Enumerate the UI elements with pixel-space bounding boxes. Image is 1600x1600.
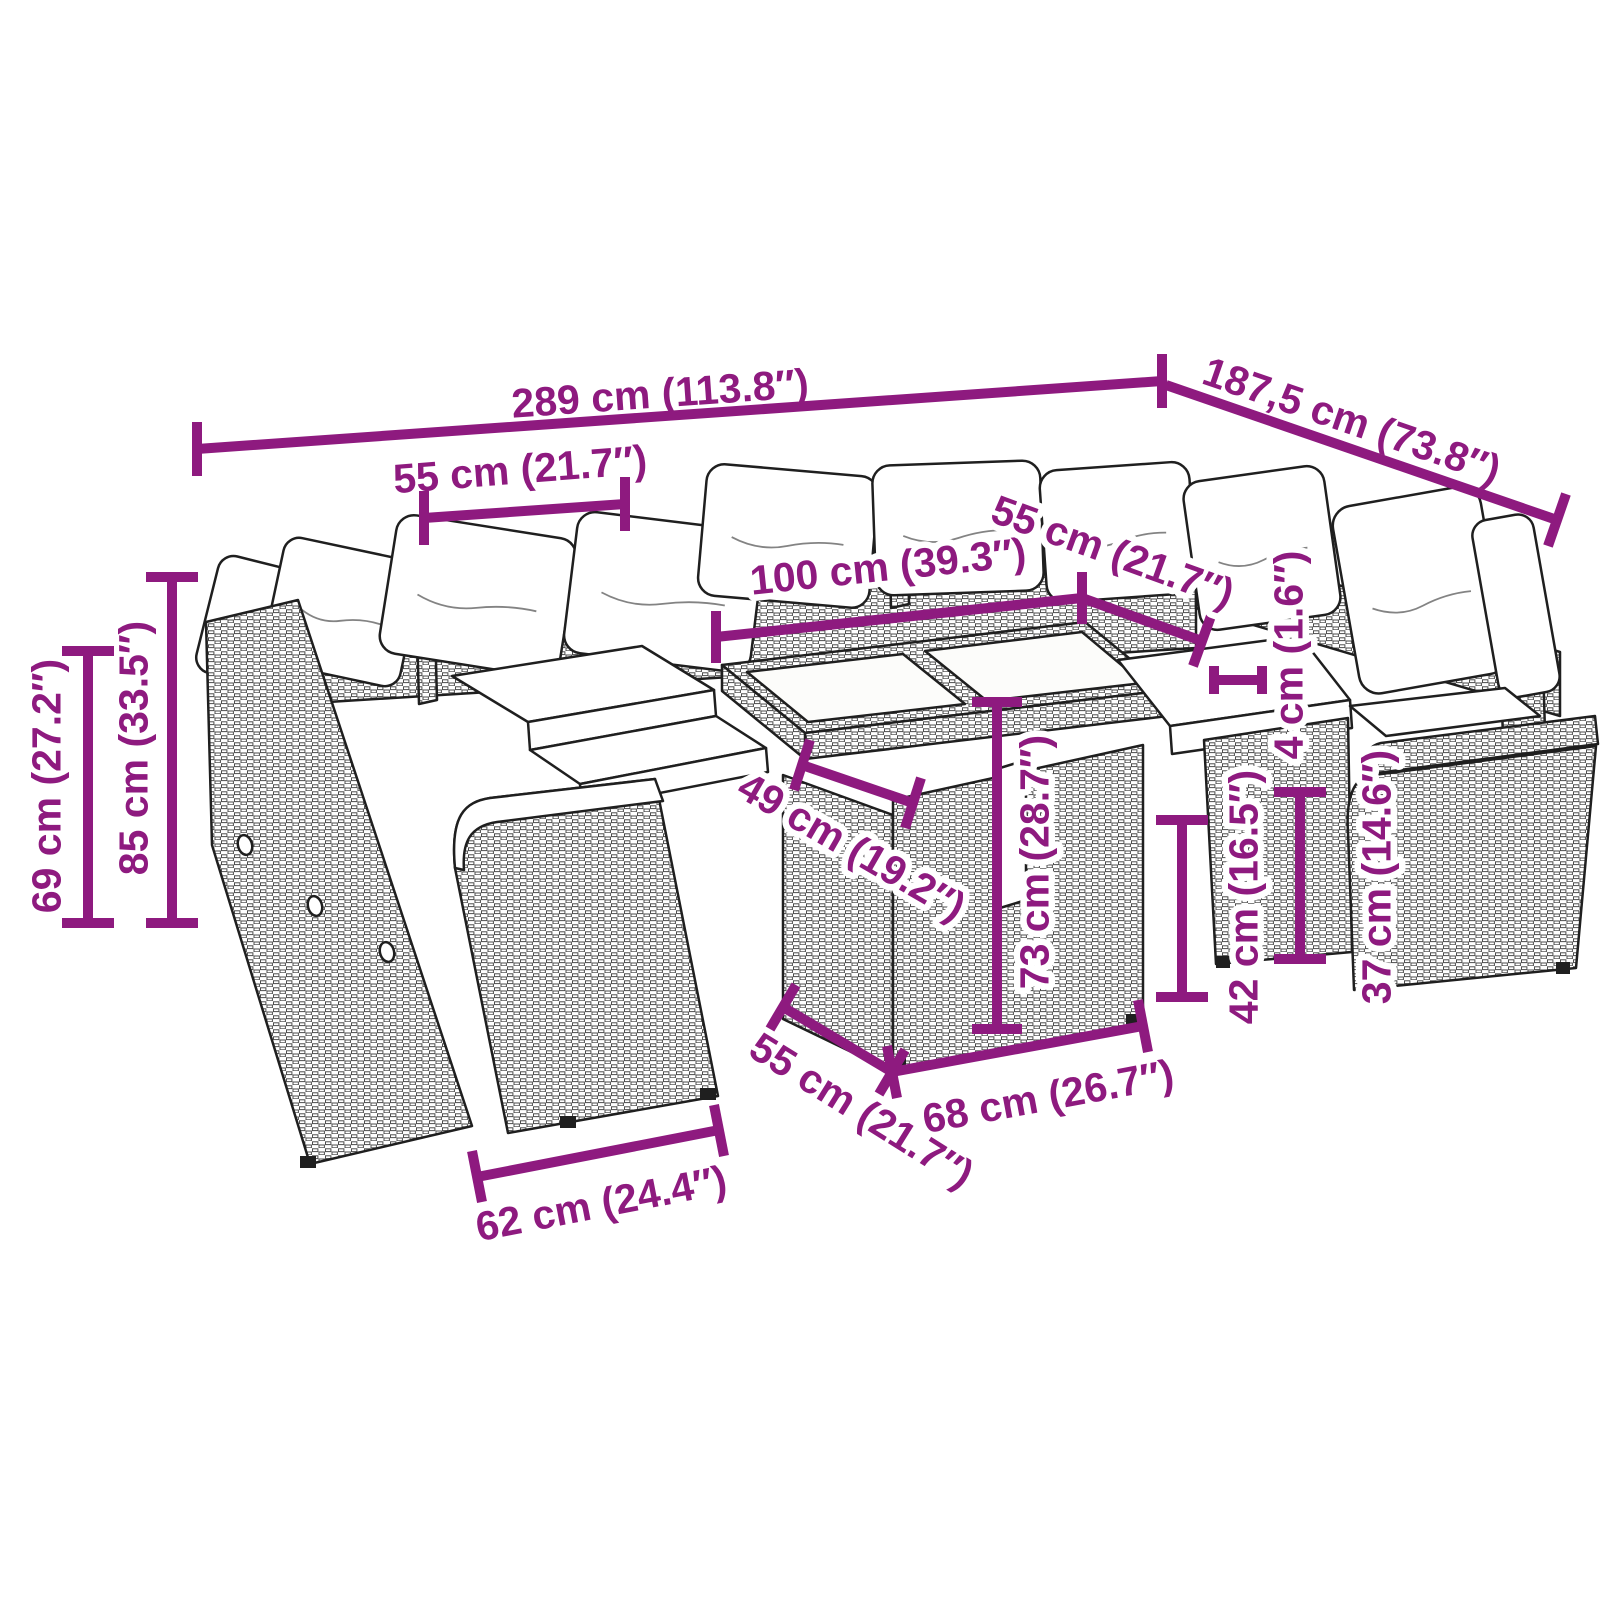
- product-dimension-diagram: 289 cm (113.8″) 187,5 cm (73.8″) 55 cm (…: [0, 0, 1600, 1600]
- dim-label-seat-frame-height: 42 cm (16.5″): [1220, 770, 1266, 1024]
- dim-armrest-height: 69 cm (27.2″): [23, 651, 114, 923]
- foot: [300, 1156, 316, 1168]
- back-cushion: [377, 513, 579, 680]
- dim-label-tabletop-thickness: 4 cm (1.6″): [1265, 551, 1311, 760]
- dim-label-total-height: 85 cm (33.5″): [110, 621, 156, 875]
- dim-label-seat-height: 37 cm (14.6″): [1353, 750, 1399, 1004]
- dim-label-overall-depth: 187,5 cm (73.8″): [1197, 348, 1506, 493]
- dim-label-armrest-height: 69 cm (27.2″): [23, 659, 69, 913]
- dim-total-height: 85 cm (33.5″): [110, 577, 198, 923]
- left-armrest: [454, 779, 718, 1133]
- foot: [700, 1088, 716, 1100]
- dim-overall-width: 289 cm (113.8″): [197, 354, 1162, 476]
- dim-label-back-seat-width-left: 55 cm (21.7″): [391, 436, 648, 502]
- dim-label-table-height: 73 cm (28.7″): [1011, 735, 1057, 989]
- foot: [1556, 962, 1570, 974]
- diagram-canvas: 289 cm (113.8″) 187,5 cm (73.8″) 55 cm (…: [0, 0, 1600, 1600]
- foot: [560, 1116, 576, 1128]
